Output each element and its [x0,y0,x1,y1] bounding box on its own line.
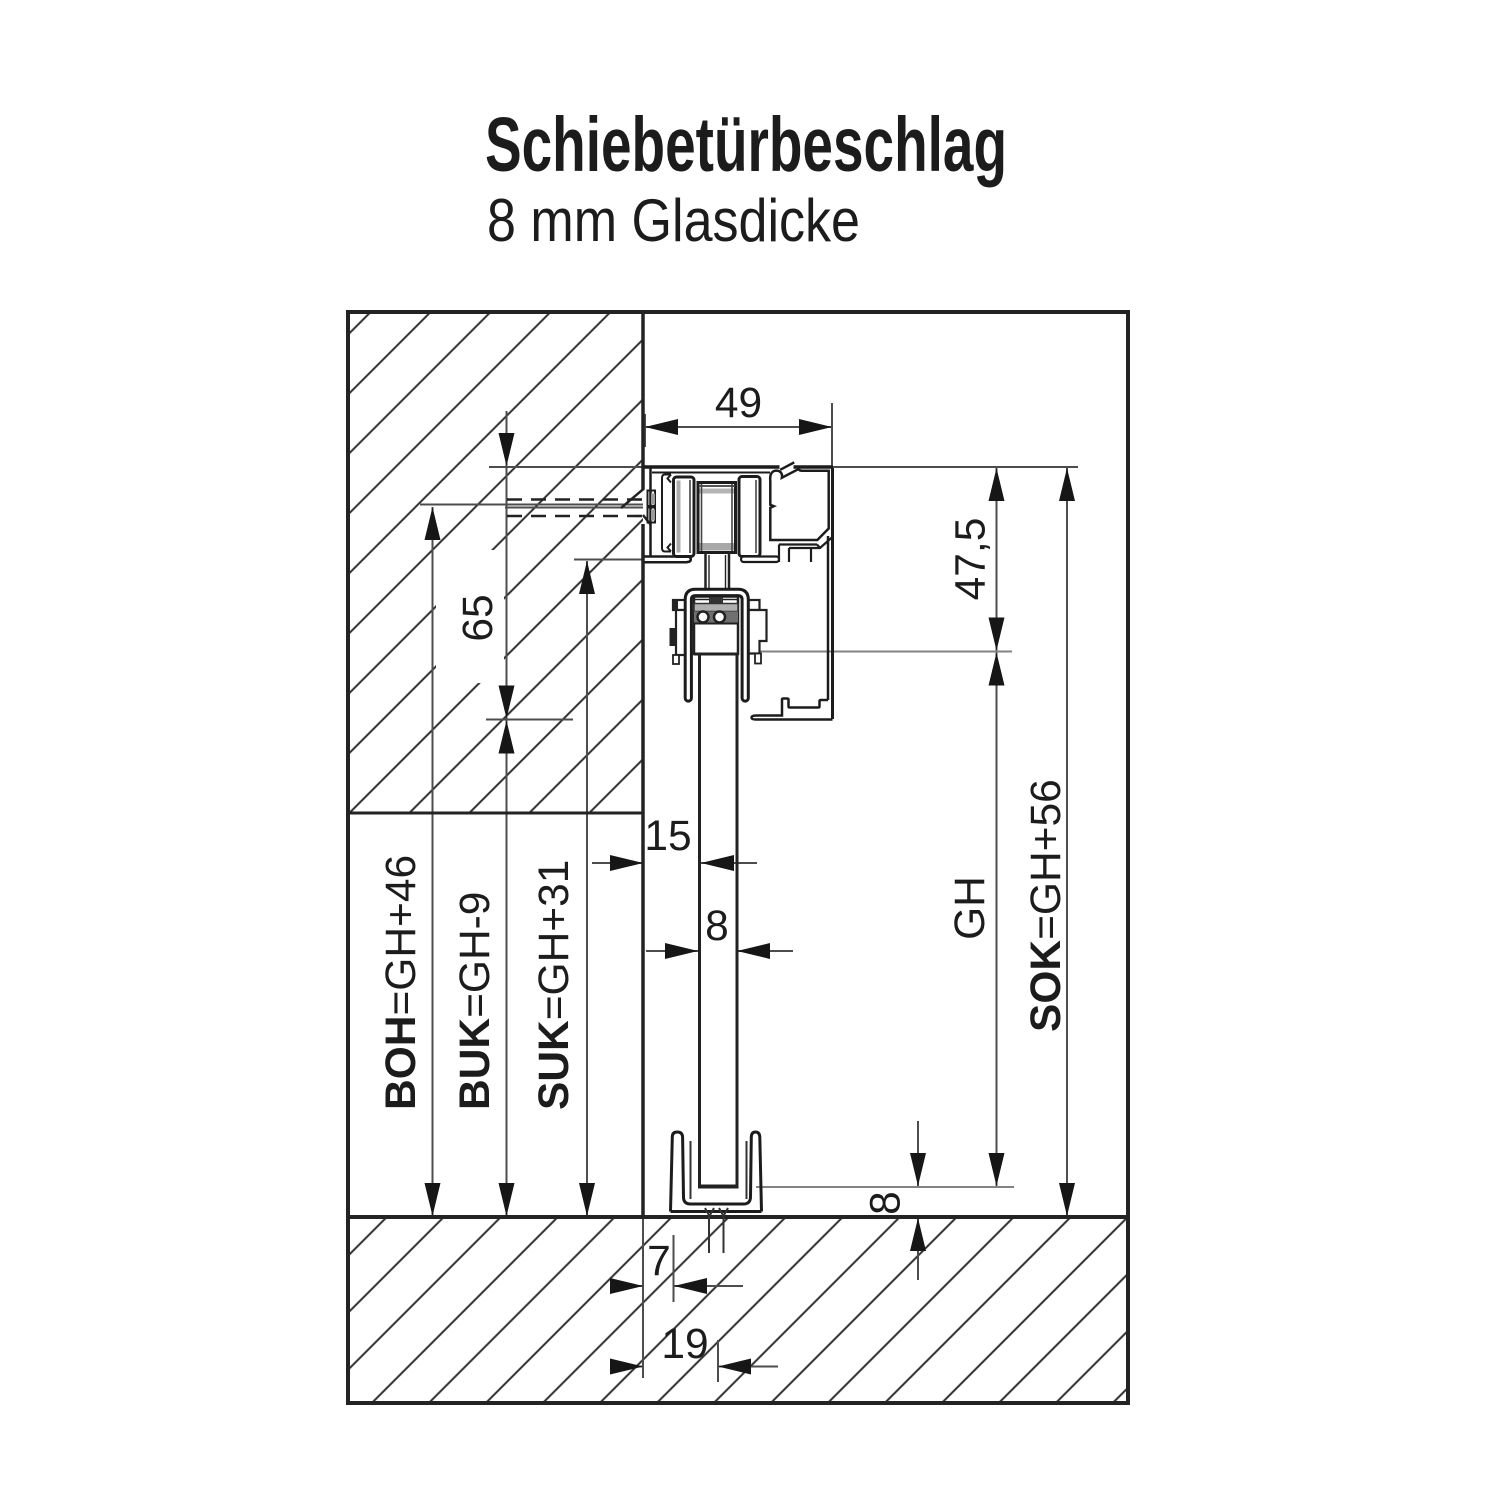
svg-text:19: 19 [661,1321,708,1368]
svg-text:SUK=GH+31: SUK=GH+31 [531,860,578,1110]
svg-text:65: 65 [455,594,502,641]
svg-text:GH: GH [947,876,994,940]
svg-text:8: 8 [705,903,729,950]
svg-text:BUK=GH-9: BUK=GH-9 [452,892,499,1110]
svg-text:8 mm Glasdicke: 8 mm Glasdicke [487,187,860,254]
svg-text:BOH=GH+46: BOH=GH+46 [378,855,425,1110]
svg-text:7: 7 [647,1238,671,1285]
svg-text:SOK=GH+56: SOK=GH+56 [1023,779,1070,1032]
svg-text:49: 49 [715,380,762,427]
svg-text:Schiebetürbeschlag: Schiebetürbeschlag [485,102,1007,188]
svg-text:8: 8 [863,1191,910,1215]
svg-text:47,5: 47,5 [948,518,995,601]
svg-text:15: 15 [644,813,691,860]
